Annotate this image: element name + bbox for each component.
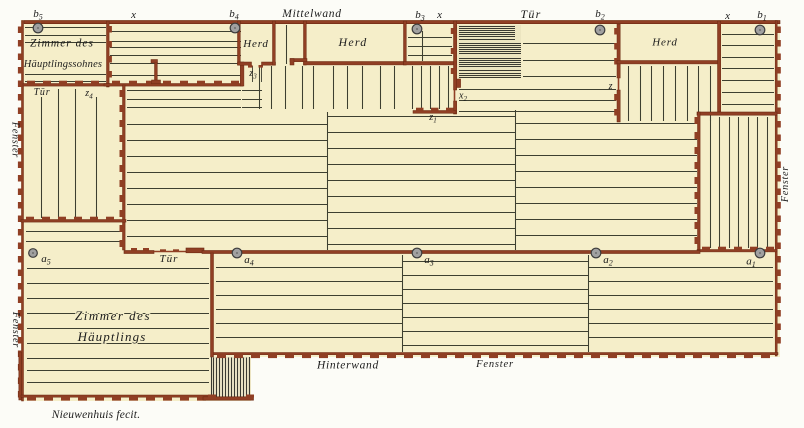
svg-text:x: x bbox=[130, 9, 137, 21]
svg-text:z: z bbox=[608, 81, 614, 92]
svg-text:Tür: Tür bbox=[160, 253, 179, 265]
svg-text:Häuptlingssohnes: Häuptlingssohnes bbox=[23, 59, 102, 70]
svg-text:Herd: Herd bbox=[337, 35, 367, 49]
svg-text:Hinterwand: Hinterwand bbox=[316, 360, 379, 372]
svg-text:Herd: Herd bbox=[651, 37, 677, 49]
svg-text:Fenster: Fenster bbox=[780, 166, 791, 203]
svg-text:Zimmer des: Zimmer des bbox=[75, 308, 151, 323]
svg-text:x: x bbox=[724, 10, 731, 22]
svg-text:Herd: Herd bbox=[242, 38, 268, 50]
svg-text:Fenster: Fenster bbox=[475, 359, 514, 370]
svg-text:Tür: Tür bbox=[34, 87, 51, 98]
svg-text:Fenster: Fenster bbox=[10, 121, 21, 158]
svg-text:Häuptlings: Häuptlings bbox=[77, 329, 147, 344]
svg-text:Nieuwenhuis fecit.: Nieuwenhuis fecit. bbox=[51, 409, 141, 421]
svg-text:Fenster: Fenster bbox=[10, 311, 21, 348]
svg-text:Zimmer des: Zimmer des bbox=[30, 38, 94, 50]
svg-text:Mittelwand: Mittelwand bbox=[281, 8, 341, 20]
svg-text:x: x bbox=[436, 9, 443, 21]
svg-text:Tür: Tür bbox=[521, 7, 542, 21]
